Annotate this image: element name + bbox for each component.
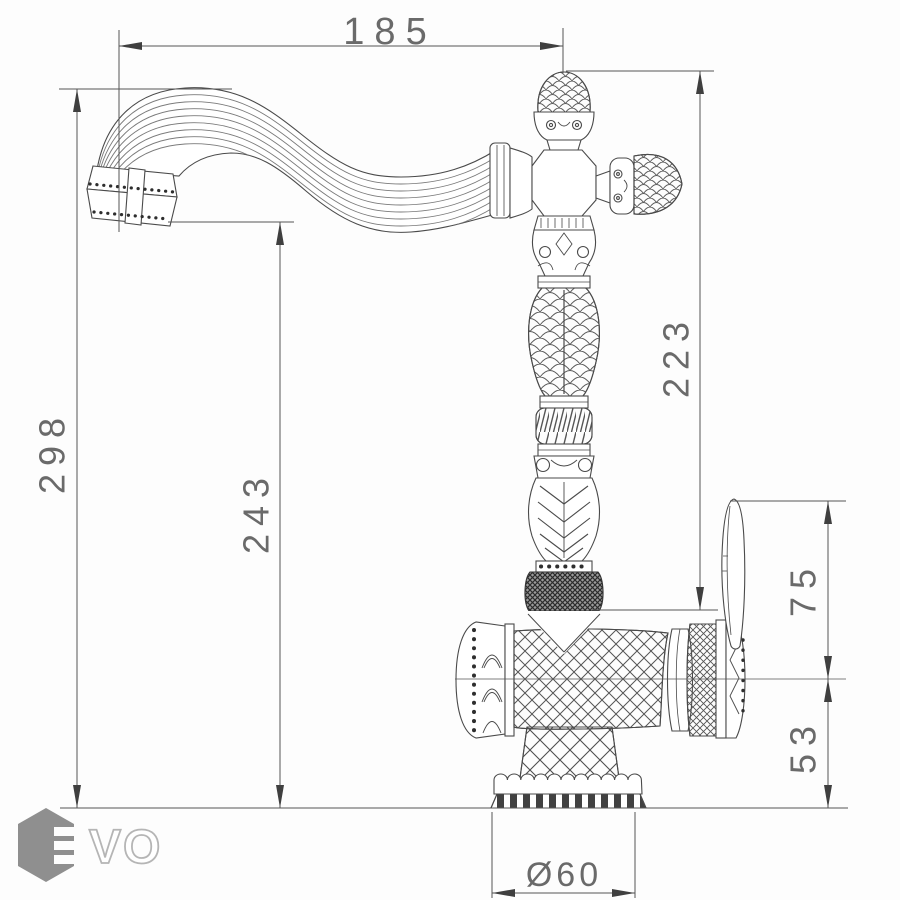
dim-label-base-diameter: Ø60 bbox=[526, 856, 602, 894]
dim-label-spout-outlet-height: 243 bbox=[236, 470, 277, 554]
dim-label-column-height: 223 bbox=[656, 314, 697, 398]
technical-drawing-page: 185 298 243 223 75 53 Ø60 VO bbox=[0, 0, 900, 900]
dim-label-overall-height: 298 bbox=[32, 410, 73, 494]
spout-collar bbox=[490, 143, 532, 218]
faucet-technical-drawing: 185 298 243 223 75 53 Ø60 VO bbox=[0, 0, 900, 900]
logo-text-vo: VO bbox=[89, 821, 162, 874]
valve-cross-body bbox=[532, 150, 596, 216]
spout-aerator-cap bbox=[87, 166, 177, 226]
dim-label-handle-height: 75 bbox=[783, 561, 824, 617]
dim-label-spout-reach: 185 bbox=[343, 11, 436, 53]
logo-letter-e-bars bbox=[54, 827, 90, 864]
dim-label-body-height: 53 bbox=[783, 718, 824, 774]
